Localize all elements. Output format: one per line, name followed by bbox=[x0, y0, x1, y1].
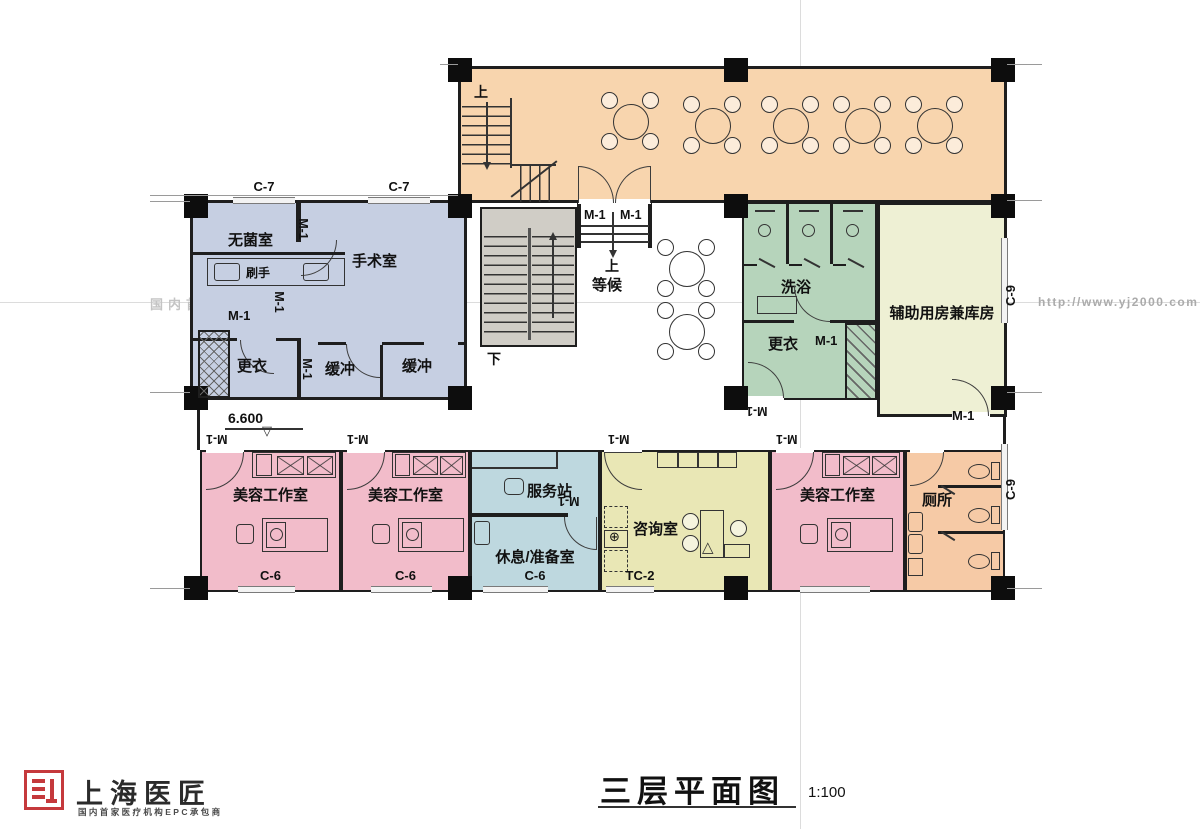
scrub-label: 刷手 bbox=[246, 264, 270, 281]
shaft-hatched bbox=[198, 330, 230, 398]
seal-glyph-foot bbox=[46, 799, 57, 803]
sterile-room-label: 无菌室 bbox=[228, 229, 273, 250]
door-tag: M-1 bbox=[300, 358, 314, 380]
door-tag: M-1 bbox=[347, 432, 369, 446]
operating-room-label: 手术室 bbox=[352, 250, 397, 271]
column bbox=[991, 58, 1015, 82]
pillow bbox=[406, 528, 419, 541]
window-tag: C-6 bbox=[470, 568, 600, 583]
wc-tank bbox=[991, 552, 1000, 570]
shower-head bbox=[846, 224, 859, 237]
bath-bench bbox=[757, 296, 797, 314]
waiting-table-group bbox=[657, 302, 715, 360]
dining-stair-lower-run bbox=[512, 164, 556, 202]
column bbox=[448, 58, 472, 82]
wall-sterile-bottom bbox=[193, 252, 345, 255]
vestibule-step bbox=[581, 233, 649, 235]
sheet-scale: 1:100 bbox=[808, 784, 846, 801]
column bbox=[991, 386, 1015, 410]
window bbox=[606, 586, 654, 593]
vestibule-arrow-line bbox=[612, 212, 614, 254]
changing-label: 更衣 bbox=[237, 355, 267, 376]
seal-glyph-stem bbox=[50, 779, 54, 799]
sink bbox=[908, 512, 923, 532]
wall-shower-bottom bbox=[833, 264, 846, 266]
window-tag: C-6 bbox=[341, 568, 470, 583]
wall-toilet-stall bbox=[938, 485, 1004, 488]
door-tag: M-1 bbox=[608, 432, 630, 446]
equipment-box bbox=[604, 506, 628, 528]
scrub-sink bbox=[303, 263, 329, 281]
window-tag: C-6 bbox=[200, 568, 341, 583]
column bbox=[724, 58, 748, 82]
stairwell-divider bbox=[528, 228, 531, 340]
wall-buffer-top2 bbox=[382, 342, 424, 345]
stair-down-label: 下 bbox=[487, 349, 501, 369]
consultation-label: 咨询室 bbox=[633, 518, 678, 539]
dining-table-group bbox=[683, 96, 741, 154]
window bbox=[238, 586, 295, 593]
stair-up-label: 上 bbox=[474, 82, 488, 102]
cabinet-divider bbox=[677, 452, 679, 468]
chair bbox=[682, 513, 699, 530]
door-tag: M-1 bbox=[620, 208, 642, 222]
shower-head bbox=[758, 224, 771, 237]
waiting-table-group bbox=[657, 239, 715, 297]
column bbox=[724, 386, 748, 410]
stairwell-treads-left bbox=[484, 228, 527, 340]
dining-table-group bbox=[761, 96, 819, 154]
column bbox=[724, 194, 748, 218]
stairwell-arrow-line bbox=[552, 238, 554, 318]
cabinet-x bbox=[307, 456, 333, 475]
shaft-hatched bbox=[845, 323, 877, 400]
window bbox=[368, 197, 430, 204]
dimension-line bbox=[440, 64, 458, 65]
dimension-line bbox=[150, 588, 190, 589]
dimension-line bbox=[150, 195, 458, 196]
beauty-studio-label: 美容工作室 bbox=[200, 484, 341, 505]
column bbox=[184, 194, 208, 218]
scrub-sink bbox=[214, 263, 240, 281]
window-tag: C-9 bbox=[1003, 285, 1018, 306]
dimension-line bbox=[150, 392, 190, 393]
wall-service-divider bbox=[472, 513, 568, 517]
stairwell-arrow-head bbox=[549, 232, 557, 240]
dimension-line bbox=[1007, 200, 1042, 201]
wall-shower-divider bbox=[830, 204, 833, 264]
pillow bbox=[835, 528, 848, 541]
window-tag: TC-2 bbox=[615, 568, 665, 583]
cabinet-divider bbox=[697, 452, 699, 468]
dimension-line bbox=[1007, 588, 1042, 589]
aux-storage-label: 辅助用房兼库房 bbox=[880, 302, 1004, 323]
wall-shower-bottom bbox=[744, 264, 757, 266]
cabinet-x bbox=[413, 456, 438, 475]
seal-glyph-bar bbox=[32, 795, 45, 799]
wall-buffer-top3 bbox=[458, 342, 467, 345]
cabinet bbox=[908, 558, 923, 576]
wall-buffer-top bbox=[318, 342, 346, 345]
chair bbox=[730, 520, 747, 537]
door-tag: M-1 bbox=[584, 208, 606, 222]
shower-pipe bbox=[755, 210, 775, 212]
toilet-label: 厕所 bbox=[922, 489, 952, 510]
service-counter bbox=[472, 452, 558, 469]
wc bbox=[968, 464, 990, 479]
vestibule-step bbox=[581, 225, 649, 227]
cabinet bbox=[256, 454, 272, 476]
window bbox=[371, 586, 432, 593]
window bbox=[1001, 238, 1008, 323]
wc-tank bbox=[991, 506, 1000, 524]
stair-arrow-line bbox=[486, 102, 488, 164]
rest-prep-label: 休息/准备室 bbox=[470, 546, 600, 567]
door-tag: M-1 bbox=[815, 333, 837, 348]
column bbox=[448, 386, 472, 410]
wall-shower-divider bbox=[786, 204, 789, 264]
column bbox=[448, 194, 472, 218]
sheet-title: 三层平面图 bbox=[600, 766, 785, 811]
door-tag: M-1 bbox=[228, 308, 250, 323]
dimension-line bbox=[1007, 64, 1042, 65]
column bbox=[991, 194, 1015, 218]
wc bbox=[968, 554, 990, 569]
shower-head bbox=[802, 224, 815, 237]
window bbox=[483, 586, 548, 593]
waiting-label: 等候 bbox=[592, 274, 622, 295]
sink bbox=[474, 521, 490, 545]
stair-arrow-head bbox=[483, 162, 491, 170]
door-tag: M-1 bbox=[776, 432, 798, 446]
cabinet-divider bbox=[717, 452, 719, 468]
door-tag: M-1 bbox=[746, 404, 768, 418]
wall-bath-bottom bbox=[744, 320, 794, 323]
cabinet bbox=[395, 454, 410, 476]
window-tag: C-7 bbox=[369, 179, 429, 194]
logo-tagline: 国内首家医疗机构EPC承包商 bbox=[78, 806, 223, 818]
wc bbox=[968, 508, 990, 523]
watermark-url: http://www.yj2000.com bbox=[1038, 295, 1198, 309]
wall-buffer-divider bbox=[380, 345, 383, 400]
shower-pipe bbox=[799, 210, 819, 212]
window bbox=[800, 586, 870, 593]
service-chair bbox=[504, 478, 524, 495]
stool bbox=[372, 524, 390, 544]
cabinet-x bbox=[440, 456, 463, 475]
stool bbox=[800, 524, 818, 544]
cabinet bbox=[825, 454, 840, 476]
window-tag: C-9 bbox=[1003, 479, 1018, 500]
dining-table-group bbox=[601, 92, 659, 150]
beauty-studio-label: 美容工作室 bbox=[341, 484, 470, 505]
window-tag: C-7 bbox=[234, 179, 294, 194]
buffer-label: 缓冲 bbox=[402, 355, 432, 376]
floor-plan-sheet: 国内首家医疗机构EPC承包商 http://www.yj2000.com 上 bbox=[0, 0, 1200, 829]
door-tag: M-1 bbox=[296, 218, 310, 240]
column bbox=[724, 576, 748, 600]
seal-glyph-bar bbox=[32, 779, 45, 783]
pillow bbox=[270, 528, 283, 541]
sink bbox=[908, 534, 923, 554]
buffer-label: 缓冲 bbox=[325, 358, 355, 379]
seal-glyph-bar bbox=[32, 787, 45, 791]
dining-table-group bbox=[905, 96, 963, 154]
dining-table-group bbox=[833, 96, 891, 154]
chair bbox=[682, 535, 699, 552]
window bbox=[233, 197, 295, 204]
cabinet-x bbox=[843, 456, 870, 475]
dimension-line bbox=[150, 201, 190, 202]
wall-toilet-stall bbox=[938, 531, 1004, 534]
cabinet-x bbox=[277, 456, 304, 475]
door-tag: M-1 bbox=[272, 291, 286, 313]
beauty-studio-label: 美容工作室 bbox=[770, 484, 905, 505]
level-triangle: ▽ bbox=[262, 423, 272, 439]
logo-seal bbox=[24, 770, 64, 810]
cabinet-x bbox=[872, 456, 897, 475]
door-tag: M-1 bbox=[952, 408, 974, 423]
stool bbox=[236, 524, 254, 544]
shower-pipe bbox=[843, 210, 863, 212]
wc-tank bbox=[991, 462, 1000, 480]
waiting-up-label: 上 bbox=[605, 256, 619, 276]
changing-label-green: 更衣 bbox=[768, 333, 798, 354]
laptop: △ bbox=[702, 538, 714, 556]
equipment-dial: ⊕ bbox=[609, 529, 620, 545]
title-underline bbox=[598, 806, 796, 808]
wall-shower-bottom bbox=[789, 264, 802, 266]
level-value: 6.600 bbox=[228, 410, 263, 426]
vestibule-step bbox=[581, 241, 649, 243]
desk-return bbox=[724, 544, 750, 558]
dimension-line bbox=[1007, 392, 1042, 393]
door-tag: M-1 bbox=[558, 494, 580, 508]
door-tag: M-1 bbox=[206, 432, 228, 446]
